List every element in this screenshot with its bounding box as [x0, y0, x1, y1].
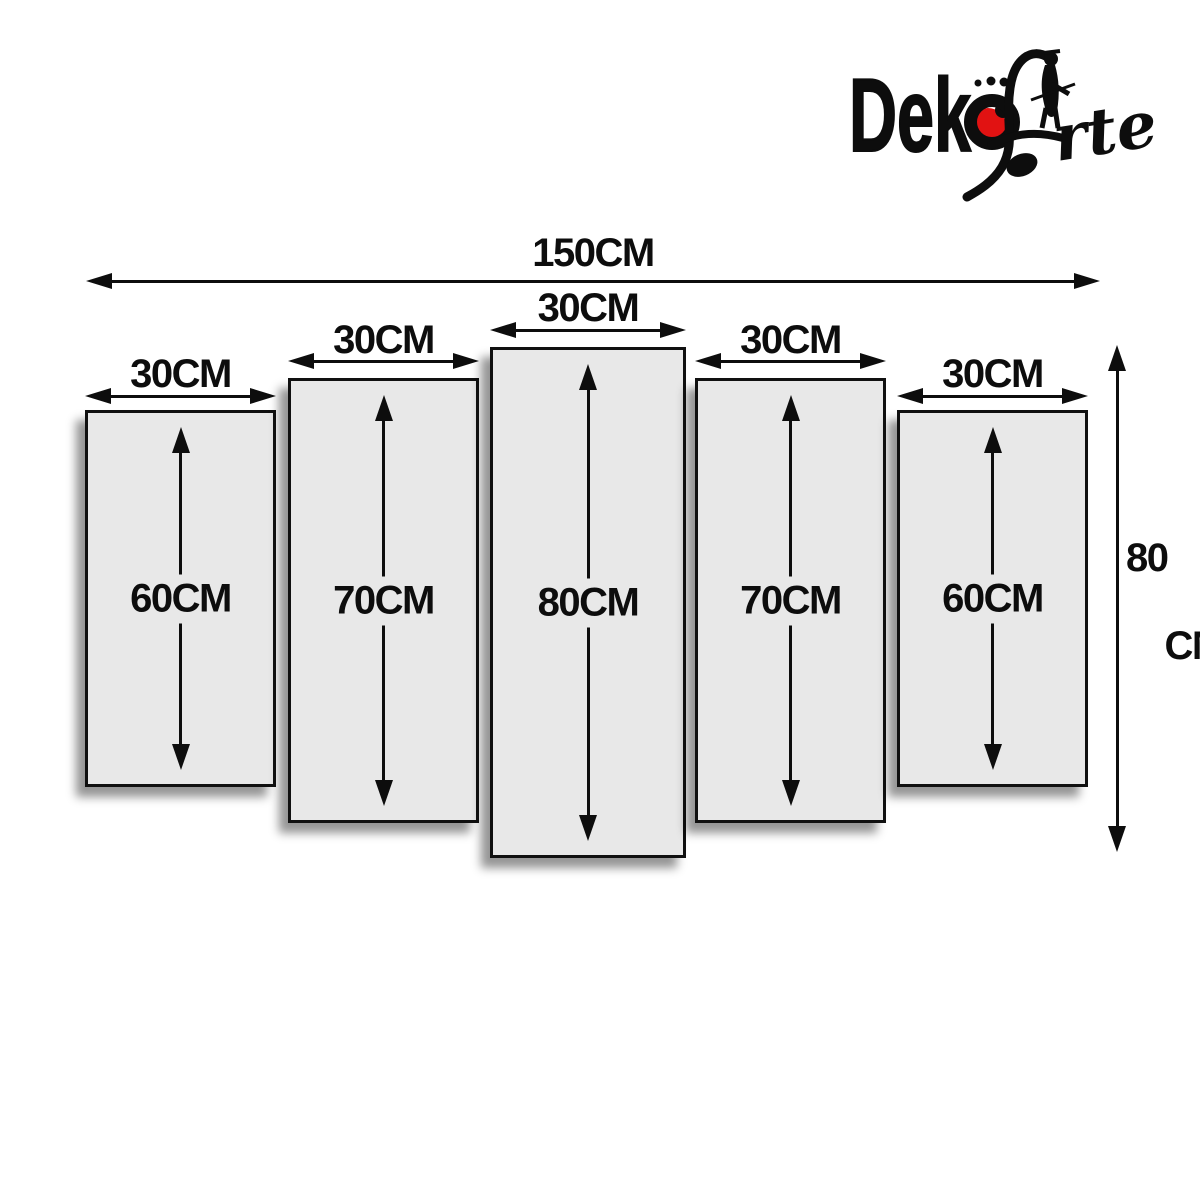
panel-4-height-label: 70CM [731, 576, 850, 625]
panel-5-width-arrow [897, 388, 1088, 404]
panel-2-width-arrow [288, 353, 479, 369]
arrow-shaft [915, 395, 1070, 398]
panel-5-height-label: 60CM [933, 574, 1052, 623]
brand-logo: Dek [845, 48, 1175, 208]
arrow-shaft [104, 280, 1082, 283]
panel-3-width-arrow [490, 322, 686, 338]
total-height-unit: CM [1164, 624, 1200, 668]
arrow-shaft [306, 360, 461, 363]
logo-text-rte: rte [1048, 86, 1162, 176]
o-umlaut-dots-icon [975, 77, 1009, 87]
arrow-shaft [713, 360, 868, 363]
panel-1: 60CM [85, 410, 276, 787]
logo-text-dek: Dek [849, 58, 971, 174]
total-width-label: 150CM [86, 231, 1100, 275]
panel-1-width-arrow [85, 388, 276, 404]
panel-4: 70CM [695, 378, 886, 823]
brand-logo-art: Dek [845, 48, 1175, 208]
total-height-label: 80 CM [1126, 536, 1200, 668]
panel-5: 60CM [897, 410, 1088, 787]
arrow-shaft [508, 329, 668, 332]
panel-2: 70CM [288, 378, 479, 823]
panel-4-width-arrow [695, 353, 886, 369]
arrow-shaft [103, 395, 258, 398]
dimension-diagram: Dek [0, 0, 1200, 1200]
panel-1-height-label: 60CM [121, 574, 240, 623]
arrow-shaft [1116, 363, 1119, 834]
total-height-value: 80 [1126, 536, 1168, 580]
total-height-arrow [1108, 345, 1126, 852]
panel-2-height-label: 70CM [324, 576, 443, 625]
panel-3: 80CM [490, 347, 686, 858]
panel-3-height-label: 80CM [529, 578, 648, 627]
